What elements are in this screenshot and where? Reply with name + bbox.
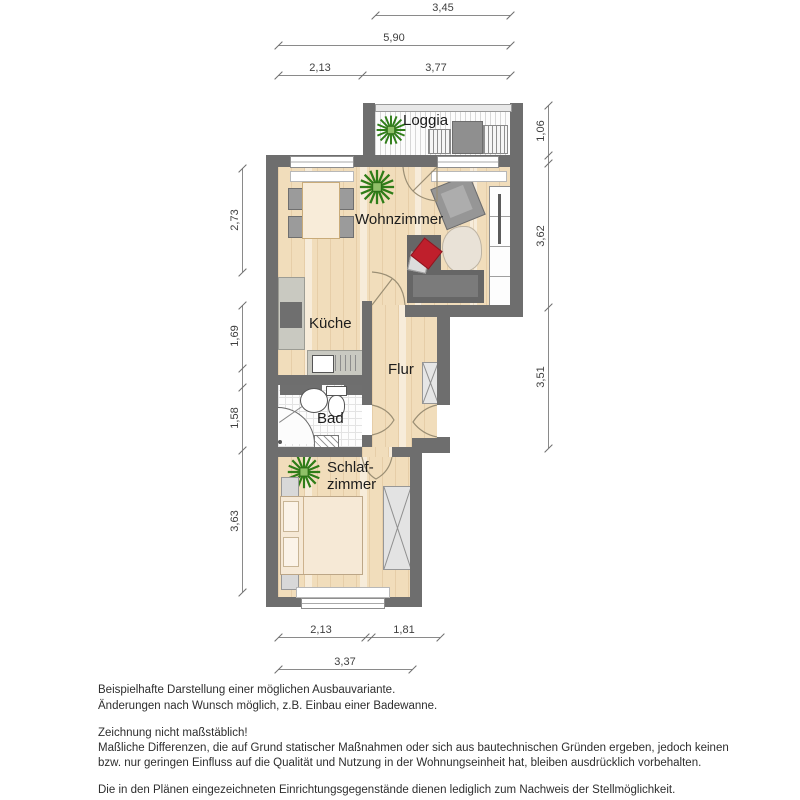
- nightstand: [281, 477, 299, 497]
- dining-table: [302, 182, 340, 239]
- bed-blanket-line: [303, 497, 304, 574]
- wardrobe-x-icon: [384, 487, 411, 569]
- floor-door-gap: [362, 447, 392, 457]
- dim-line: [278, 75, 510, 76]
- footer-line: Beispielhafte Darstellung einer mögliche…: [98, 684, 395, 696]
- footer-line: bzw. nur geringen Einfluss auf die Quali…: [98, 757, 701, 769]
- dim-line: [278, 669, 412, 670]
- shower-line: [279, 406, 303, 423]
- loggia-chair-left: [428, 129, 451, 154]
- sofa-seat: [413, 275, 478, 297]
- dim-bottom-total: 3,37: [331, 656, 358, 668]
- dim-left-wohnzimmer: 2,73: [229, 206, 241, 233]
- dim-left-schlafzimmer: 3,63: [229, 507, 241, 534]
- wall-bad-right-upper: [362, 385, 372, 405]
- sofa-base: [407, 270, 484, 303]
- plant-icon: [358, 168, 396, 206]
- dim-right-wohnzimmer: 3,62: [535, 222, 547, 249]
- loggia-chair-right: [483, 125, 508, 154]
- wall-right-wohnzimmer: [510, 155, 523, 317]
- dim-line: [278, 45, 510, 46]
- dim-left-bad: 1,58: [229, 404, 241, 431]
- wardrobe: [383, 486, 412, 570]
- wall-bad-top: [266, 375, 372, 385]
- wall-loggia-left: [363, 103, 375, 155]
- loggia-railing: [375, 104, 512, 112]
- footer-line: Zeichnung nicht maßstäblich!: [98, 727, 248, 739]
- footer-line: Maßliche Differenzen, die auf Grund stat…: [98, 742, 729, 754]
- window-schlafzimmer: [301, 598, 385, 609]
- dim-right-loggia: 1,06: [535, 117, 547, 144]
- dim-top-loggia: 3,45: [429, 2, 456, 14]
- room-label-loggia: Loggia: [403, 112, 448, 129]
- footer-line: Die in den Plänen eingezeichneten Einric…: [98, 784, 675, 796]
- door-wohnzimmer-flur: [372, 272, 405, 305]
- wall-schlafzimmer-top-left: [266, 447, 362, 457]
- bed-pillow: [283, 501, 299, 532]
- window-sill: [296, 587, 390, 598]
- dim-top-total: 5,90: [380, 32, 407, 44]
- kitchen-sink: [312, 355, 334, 373]
- footer-line: Änderungen nach Wunsch möglich, z.B. Ein…: [98, 700, 437, 712]
- wall-schlafzimmer-right: [410, 453, 422, 607]
- dim-bottom-flur: 1,81: [390, 624, 417, 636]
- floor-plan-page: Loggia Wohnzimmer Küche Flur Bad Schlaf-…: [0, 0, 800, 800]
- door-entrance: [413, 405, 437, 437]
- window-wohnzimmer-left: [290, 156, 354, 168]
- rug: [442, 226, 482, 273]
- wall-kueche-flur: [362, 301, 372, 385]
- dim-line: [375, 15, 510, 16]
- room-label-schlafzimmer-1: Schlaf-: [327, 459, 374, 476]
- wall-flur-right-upper: [437, 317, 450, 405]
- dim-line: [242, 168, 243, 272]
- shower-drain: [278, 440, 282, 444]
- room-label-schlafzimmer-2: zimmer: [327, 476, 376, 493]
- tv: [498, 194, 501, 244]
- door-balcony: [403, 167, 437, 201]
- dim-top-right: 3,77: [422, 62, 449, 74]
- window-wohnzimmer-right: [437, 156, 499, 168]
- room-label-bad: Bad: [317, 410, 344, 427]
- dim-line: [278, 637, 440, 638]
- bed: [280, 496, 363, 575]
- wall-bad-right-lower: [362, 435, 372, 447]
- wall-wohnzimmer-flur: [405, 305, 523, 317]
- dim-right-flur: 3,51: [535, 363, 547, 390]
- shelf-unit: [489, 186, 511, 307]
- dim-left-kueche: 1,69: [229, 322, 241, 349]
- armchair-seat: [441, 185, 473, 218]
- room-label-wohnzimmer: Wohnzimmer: [355, 211, 443, 228]
- kitchen-sink-counter: [307, 350, 364, 377]
- loggia-table: [452, 121, 483, 154]
- kitchen-stove: [280, 302, 302, 328]
- bed-pillow: [283, 537, 299, 567]
- dim-bottom-schlafzimmer: 2,13: [307, 624, 334, 636]
- room-label-kueche: Küche: [309, 315, 352, 332]
- window-sill: [431, 171, 507, 182]
- window-sill: [290, 171, 354, 182]
- door-bad: [372, 405, 394, 435]
- cabinet-x-icon: [423, 363, 438, 403]
- room-label-flur: Flur: [388, 361, 414, 378]
- kitchen-drainer: [335, 355, 359, 371]
- dim-top-left: 2,13: [306, 62, 333, 74]
- wall-step: [412, 438, 450, 453]
